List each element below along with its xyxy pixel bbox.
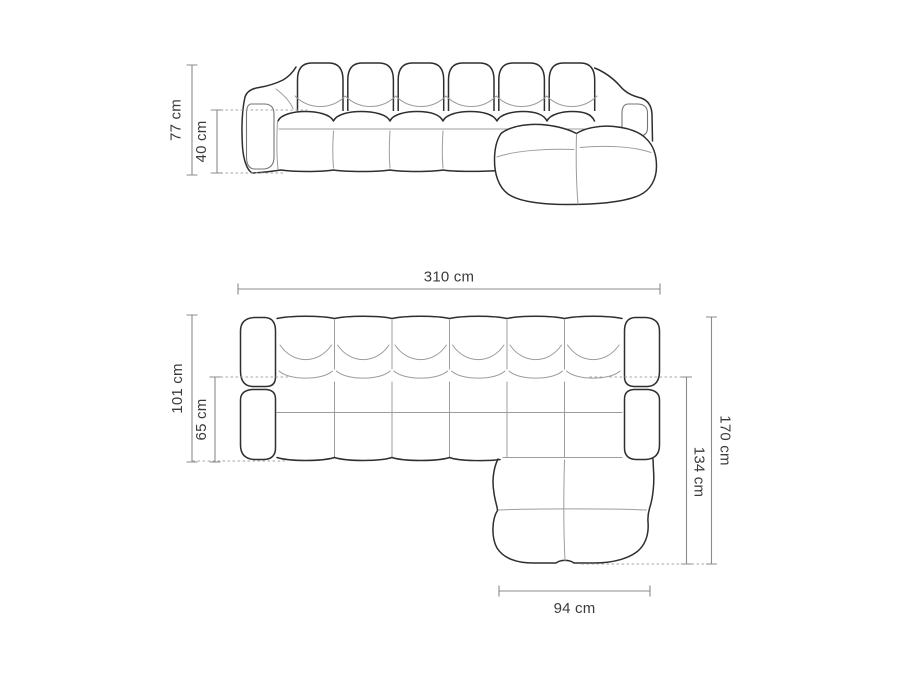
sofa-top-drawing [240, 316, 660, 563]
top-left-armrest-front [241, 390, 276, 460]
front-dim-label-seat-height: 40 cm [193, 121, 210, 163]
sofa-dimension-diagram: 77 cm 40 cm [0, 0, 900, 675]
top-dim-label-chaise-width: 94 cm [554, 600, 596, 617]
front-view: 77 cm 40 cm [168, 63, 657, 205]
top-view: 310 cm 101 cm 65 cm 170 cm 134 cm 94 cm [169, 269, 734, 618]
front-back-cushion [499, 63, 545, 116]
top-dimension-line-total-depth [706, 317, 717, 564]
front-left-arm-seam [276, 89, 293, 109]
front-left-arm-face [247, 104, 275, 169]
top-dim-label-total-depth: 170 cm [717, 415, 734, 465]
top-dim-label-total-width: 310 cm [424, 269, 474, 286]
front-dim-label-total-height: 77 cm [168, 99, 185, 141]
top-dim-label-back-depth: 101 cm [169, 363, 186, 413]
front-back-cushion [348, 63, 394, 116]
top-dimension-line-seat-depth [210, 377, 221, 462]
top-right-armrest-front [625, 390, 660, 460]
front-chaise [495, 124, 657, 204]
sofa-front-drawing [242, 63, 656, 205]
top-dim-label-seat-depth: 65 cm [193, 399, 210, 441]
front-back-cushion [549, 63, 595, 116]
front-back-cushion [449, 63, 495, 116]
top-dim-label-chaise-depth: 134 cm [691, 447, 708, 497]
diagram-canvas: 77 cm 40 cm [0, 0, 900, 675]
top-chaise-fill [493, 459, 654, 563]
top-dimension-line-chaise-depth [681, 377, 692, 564]
front-back-cushion [298, 63, 344, 116]
top-dimension-line-chaise-width [499, 586, 650, 597]
top-left-armrest-back [241, 318, 276, 387]
front-dimension-line-seat-height [212, 110, 223, 173]
front-back-cushion [398, 63, 444, 116]
top-right-armrest-back [625, 318, 660, 387]
